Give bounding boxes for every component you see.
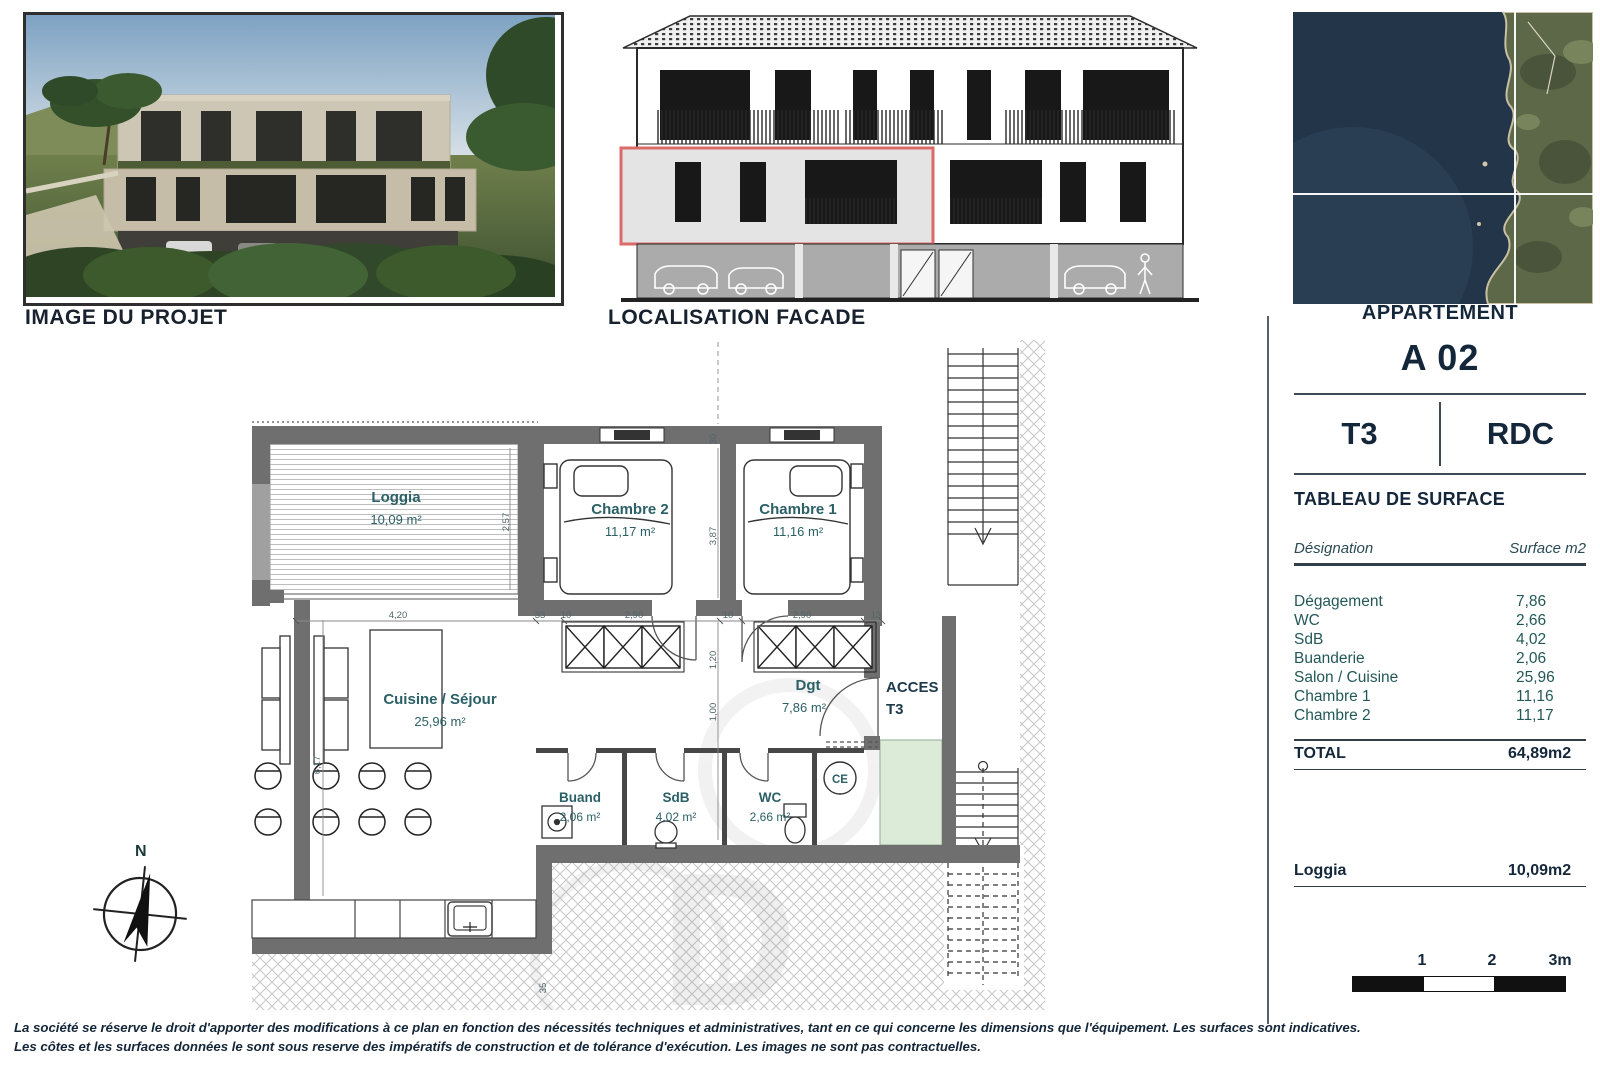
dim-chambre-h: 3,87 <box>708 527 719 546</box>
dim-cuisine-h: 6,17 <box>312 756 323 775</box>
table-row: Buanderie 2,06 <box>1294 649 1586 668</box>
apartment-panel-title: APPARTEMENT <box>1280 302 1600 325</box>
wardrobe-icons <box>562 622 876 672</box>
water-heater-icon: CE <box>824 762 856 794</box>
dim-chambre1-w: 2,90 <box>793 610 812 621</box>
row-label: Dégagement <box>1294 592 1383 611</box>
room-label-buanderie: Buand <box>559 790 601 805</box>
disclaimer-line-1: La société se réserve le droit d'apporte… <box>14 1018 1592 1037</box>
col-designation: Désignation <box>1294 540 1373 557</box>
rule <box>1294 886 1586 887</box>
compass-icon: N <box>85 840 195 972</box>
building-render <box>86 95 496 267</box>
row-value: 2,66 <box>1516 611 1586 630</box>
map-art <box>1293 12 1593 304</box>
dim-cuisine-w: 4,20 <box>389 610 408 621</box>
rule <box>1294 563 1586 566</box>
surface-table-title: TABLEAU DE SURFACE <box>1294 489 1600 510</box>
project-image-label: IMAGE DU PROJET <box>25 306 227 330</box>
surface-table: Désignation Surface m2 Dégagement 7,86 W… <box>1294 540 1586 887</box>
scale-bar-segments <box>1352 976 1566 992</box>
room-label-chambre2: Chambre 2 <box>591 501 669 518</box>
room-label-cuisine: Cuisine / Séjour <box>383 691 497 708</box>
kitchen-island <box>370 630 442 748</box>
loggia-label: Loggia <box>1294 862 1346 880</box>
apartment-info-panel: APPARTEMENT A 02 T3 RDC TABLEAU DE SURFA… <box>1280 302 1600 887</box>
table-row: SdB 4,02 <box>1294 630 1586 649</box>
facade-art <box>605 12 1215 304</box>
scale-segment <box>1353 977 1423 991</box>
dim-10b: 10 <box>723 610 734 621</box>
stairs-upper-icon <box>948 348 1018 585</box>
table-row: Chambre 1 11,16 <box>1294 687 1586 706</box>
sink-basin-icon <box>655 821 677 848</box>
scale-segment <box>1423 977 1495 991</box>
acces-label-line2: T3 <box>886 701 904 718</box>
dim-35: 35 <box>538 983 549 994</box>
table-row: Salon / Cuisine 25,96 <box>1294 668 1586 687</box>
type-floor-row: T3 RDC <box>1280 395 1600 473</box>
facade-garage-level <box>637 244 1183 298</box>
total-row: TOTAL 64,89m2 <box>1294 741 1586 767</box>
col-surface: Surface m2 <box>1509 540 1586 557</box>
rule <box>1294 769 1586 770</box>
table-row: Dégagement 7,86 <box>1294 592 1586 611</box>
room-area-chambre2: 11,17 m² <box>605 524 656 539</box>
room-area-loggia: 10,09 m² <box>370 512 422 527</box>
project-render-image <box>23 12 564 306</box>
dim-120: 1,20 <box>708 651 719 670</box>
room-area-sdb: 4,02 m² <box>656 810 697 824</box>
kitchen-counter <box>252 900 536 938</box>
facade-roof <box>623 16 1197 48</box>
row-label: Salon / Cuisine <box>1294 668 1398 687</box>
scale-tick-1: 1 <box>1418 952 1427 970</box>
row-value: 11,16 <box>1516 687 1586 706</box>
row-value: 4,02 <box>1516 630 1586 649</box>
facade-upper-railings <box>655 110 1175 144</box>
total-value: 64,89m2 <box>1508 745 1586 763</box>
ce-label: CE <box>832 774 848 786</box>
project-render-art <box>26 15 555 297</box>
row-value: 7,86 <box>1516 592 1586 611</box>
table-row: WC 2,66 <box>1294 611 1586 630</box>
dining-chairs <box>255 763 431 835</box>
room-label-dgt: Dgt <box>796 677 821 694</box>
room-area-dgt: 7,86 m² <box>782 700 827 715</box>
dim-10a: 10 <box>561 610 572 621</box>
disclaimer-line-2: Les côtes et les surfaces données le son… <box>14 1037 1592 1056</box>
row-value: 25,96 <box>1516 668 1586 687</box>
dim-chambre2-w: 2,90 <box>625 610 644 621</box>
room-label-loggia: Loggia <box>371 489 421 506</box>
row-value: 11,17 <box>1516 706 1586 725</box>
row-label: Buanderie <box>1294 649 1365 668</box>
dim-30: 30 <box>708 434 719 445</box>
facade-label: LOCALISATION FACADE <box>608 306 866 330</box>
apartment-floor: RDC <box>1441 416 1600 452</box>
location-map-image <box>1293 12 1593 304</box>
room-area-cuisine: 25,96 m² <box>414 714 466 729</box>
dim-loggia-h: 2,57 <box>501 513 512 532</box>
compass-north-label: N <box>135 843 147 860</box>
acces-label-line1: ACCES <box>886 679 939 696</box>
room-area-chambre1: 11,16 m² <box>773 524 824 539</box>
total-label: TOTAL <box>1294 745 1346 763</box>
apartment-type: T3 <box>1280 416 1439 452</box>
table-row: Chambre 2 11,17 <box>1294 706 1586 725</box>
scale-segment <box>1495 977 1565 991</box>
scale-tick-3: 3m <box>1548 952 1571 970</box>
vertical-divider <box>1267 316 1269 1024</box>
scale-bar: 1 2 3m <box>1352 952 1576 992</box>
room-area-buanderie: 2,06 m² <box>560 810 601 824</box>
room-area-wc: 2,66 m² <box>750 810 791 824</box>
disclaimer: La société se réserve le droit d'apporte… <box>14 1018 1592 1056</box>
room-label-chambre1: Chambre 1 <box>759 501 837 518</box>
row-label: SdB <box>1294 630 1323 649</box>
dim-33: 33 <box>535 610 546 621</box>
floor-plan-drawing: D <box>230 340 1045 1010</box>
loggia-value: 10,09m2 <box>1508 862 1586 880</box>
dim-100: 1,00 <box>708 703 719 722</box>
room-label-sdb: SdB <box>663 790 690 805</box>
scale-tick-2: 2 <box>1488 952 1497 970</box>
facade-elevation-drawing <box>605 12 1215 304</box>
apartment-code: A 02 <box>1280 337 1600 379</box>
room-label-wc: WC <box>759 790 782 805</box>
row-value: 2,06 <box>1516 649 1586 668</box>
row-label: WC <box>1294 611 1320 630</box>
row-label: Chambre 2 <box>1294 706 1371 725</box>
dim-13: 13 <box>871 610 882 621</box>
access-area <box>880 740 942 845</box>
row-label: Chambre 1 <box>1294 687 1371 706</box>
loggia-row: Loggia 10,09m2 <box>1294 858 1586 884</box>
floor-plan-art: D <box>230 340 1045 1010</box>
rule <box>1294 473 1586 475</box>
